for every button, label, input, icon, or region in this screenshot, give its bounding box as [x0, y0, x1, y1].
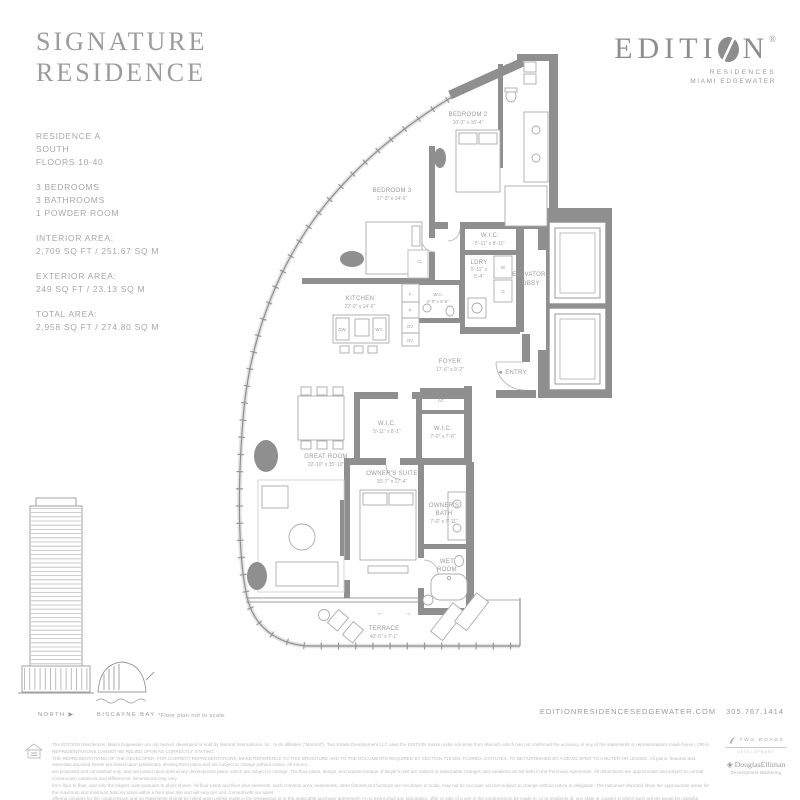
wall-segment	[419, 280, 465, 285]
elevator-core	[534, 208, 612, 398]
wall-segment	[400, 458, 470, 465]
wall-segment	[517, 54, 558, 61]
kitchen-island	[333, 315, 389, 353]
room-label-powder: W.C.	[433, 292, 442, 297]
wall-segment	[429, 252, 435, 282]
wall-segment	[422, 544, 468, 549]
room-label-wet-room-2: ROOM	[437, 567, 457, 573]
powder-fixtures	[423, 304, 454, 316]
equal-housing-icon	[25, 743, 43, 760]
slider-arrow-left: ←	[377, 610, 384, 617]
room-label-elevator-lobby-1: ELEVATOR	[512, 272, 546, 278]
biscayne-bay-icon	[96, 662, 154, 703]
wall-segment	[419, 318, 464, 323]
wall-segment	[354, 392, 360, 462]
room-label-bedroom3: BEDROOM 3	[373, 188, 412, 194]
dining-set	[298, 387, 344, 449]
room-dims-wic3: 7'-0" x 7'-8"	[430, 434, 455, 440]
pantry-label: P	[409, 308, 412, 313]
room-dims-great-room: 22'-10" x 35'-10"	[308, 462, 345, 468]
wall-segment	[460, 327, 520, 334]
room-dims-wic2: 5'-11" x 8'-1"	[373, 429, 401, 435]
wall-segment	[459, 280, 464, 323]
disclaimer-line-5: offering circulars for the condominium a…	[52, 796, 714, 800]
bed-bedroom2	[456, 130, 500, 192]
bed-owners-suite	[360, 490, 416, 573]
room-label-terrace: TERRACE	[369, 626, 400, 632]
room-label-kitchen: KITCHEN	[346, 296, 374, 302]
floor-plan: BEDROOM 2 10'-2" x 16'-4" BEDROOM 3 17'-…	[0, 0, 800, 800]
wall-segment	[464, 386, 472, 464]
not-to-scale-note: *Floor plan not to scale.	[158, 713, 226, 719]
closet-label: CL	[417, 259, 423, 264]
tower-illustration	[18, 498, 94, 693]
room-label-owners-bath-2: BATH	[436, 511, 453, 517]
two-roads-swoosh-icon	[728, 736, 737, 745]
partner-logos: TWO ROADS DEVELOPMENT ◈ DouglasElliman D…	[722, 736, 790, 775]
room-dims-bedroom3: 17'-3" x 14'-6"	[377, 196, 408, 202]
wall-segment	[344, 580, 350, 598]
bath-bedroom2-fixtures	[505, 88, 548, 226]
disclaimer-line-1: The EDITION Residences, Miami Edgewater …	[52, 742, 714, 756]
disclaimer-line-4: from floor to floor, and only the larges…	[52, 783, 714, 797]
dishwasher-label: DW	[338, 327, 346, 332]
room-label-wic3: W.I.C.	[434, 426, 452, 432]
disclaimer-line-3: are proposed and conceptual only, and ar…	[52, 769, 714, 783]
logo-divider	[726, 747, 786, 748]
douglas-elliman-subtitle: Development Marketing	[722, 770, 790, 775]
closet-cl	[408, 250, 428, 278]
room-dims-laundry-2: 5'-4"	[474, 274, 484, 280]
slider-arrow-right: →	[405, 610, 412, 617]
terrace-furniture	[319, 593, 489, 643]
biscayne-bay-label: BISCAYNE BAY	[97, 712, 155, 718]
legal-disclaimer: The EDITION Residences, Miami Edgewater …	[52, 742, 714, 800]
contact-line: EDITIONRESIDENCESEDGEWATER.COM305.767.14…	[530, 707, 784, 716]
room-dims-owners-bath: 7'-0" x 7'-11"	[430, 519, 458, 525]
room-dims-bedroom2: 10'-2" x 16'-4"	[453, 120, 484, 126]
phone-number: 305.767.1414	[726, 707, 784, 716]
wall-segment	[496, 390, 536, 398]
wall-segment	[302, 278, 434, 284]
wall-segment	[420, 388, 470, 392]
room-dims-foyer: 17'-6" x 9'-2"	[436, 367, 464, 373]
fridge-label: F	[409, 292, 412, 297]
wall-segment	[354, 392, 398, 399]
living-set	[258, 480, 344, 592]
wall-segment	[522, 334, 530, 362]
entry-label: ◄ ENTRY	[497, 370, 527, 376]
north-label: NORTH ▶	[38, 712, 74, 718]
wall-segment	[344, 458, 350, 560]
room-label-laundry: LDRY	[470, 260, 487, 266]
website-text: EDITIONRESIDENCESEDGEWATER.COM	[540, 707, 716, 716]
two-roads-wordmark: TWO ROADS	[740, 738, 785, 743]
two-roads-subtitle: DEVELOPMENT	[722, 750, 790, 754]
room-label-great-room: GREAT ROOM	[304, 454, 347, 460]
room-label-foyer: FOYER	[439, 359, 462, 365]
wall-segment	[344, 458, 386, 465]
room-label-wet-room-1: WET	[440, 559, 454, 565]
room-label-wic2: W.I.C.	[378, 421, 396, 427]
room-dims-laundry-1: 5'-11" x	[471, 267, 488, 273]
brochure-page: SIGNATURE RESIDENCE EDITI N ® RESIDENCES…	[0, 0, 800, 800]
wine-cooler-label: WC	[375, 327, 382, 332]
two-roads-logo: TWO ROADS	[722, 736, 790, 745]
room-label-elevator-lobby-2: LOBBY	[518, 281, 540, 287]
room-label-owners-bath-1: OWNER'S	[429, 503, 459, 509]
room-label-owners-suite: OWNER'S SUITE	[366, 471, 417, 477]
oven-lower-label: OV	[407, 338, 413, 343]
oven-upper-label: OV	[407, 324, 413, 329]
douglas-elliman-logo: ◈ DouglasElliman	[722, 760, 790, 769]
wall-segment	[420, 410, 470, 414]
wall-segment	[416, 392, 422, 462]
room-label-bedroom2: BEDROOM 2	[449, 112, 488, 118]
room-dims-powder: 6'-0" x 6'-5"	[427, 299, 449, 304]
disclaimer-line-2: THE REPRESENTATIONS OF THE DEVELOPER. FO…	[52, 756, 714, 770]
room-label-wic1: W.I.C.	[481, 233, 499, 239]
dryer-label: D	[501, 289, 504, 294]
room-dims-kitchen: 22'-0" x 14'-6"	[345, 304, 376, 310]
ac-closet-label: AC	[438, 398, 444, 403]
room-dims-owners-suite: 15'-7" x 17'-4"	[377, 479, 408, 485]
wall-segment	[418, 462, 424, 558]
key-map: NORTH ▶ BISCAYNE BAY *Floor plan not to …	[18, 498, 226, 719]
room-dims-wic1: 5'-11" x 8'-11"	[475, 241, 505, 247]
mech-units	[524, 62, 536, 84]
wall-segment	[462, 250, 518, 255]
room-dims-terrace: 43'-6" x 7'-1"	[370, 634, 398, 640]
wall-segment	[434, 222, 448, 229]
